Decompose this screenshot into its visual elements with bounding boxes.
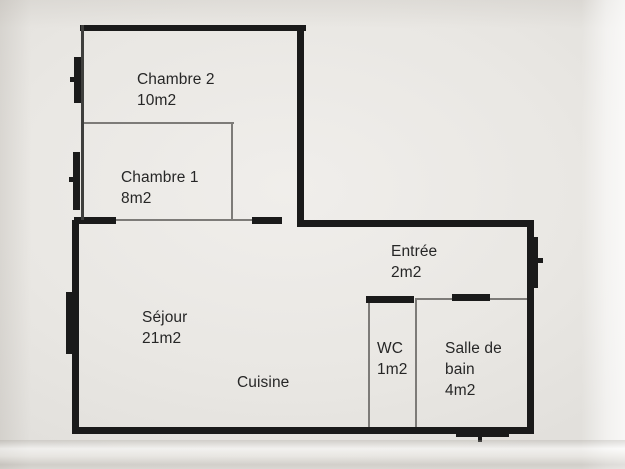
floorplan-photo: Chambre 2 10m2 Chambre 1 8m2 Séjour 21m2…: [0, 0, 625, 469]
room-name: Entrée: [391, 241, 437, 262]
partition-chambre1-top: [84, 122, 234, 124]
window-marker-chambre2: [74, 57, 81, 103]
window-marker-sejour: [66, 292, 74, 354]
room-name: Cuisine: [237, 372, 289, 393]
room-name: Chambre 1: [121, 167, 199, 188]
room-label-entree: Entrée 2m2: [391, 241, 437, 283]
room-name: Salle de bain: [445, 338, 511, 380]
window-marker-chambre1: [73, 152, 80, 210]
window-tick-chambre1: [69, 177, 74, 182]
room-area: 4m2: [445, 380, 511, 401]
window-tick-chambre2: [70, 77, 75, 82]
room-label-salle-de-bain: Salle de bain 4m2: [445, 338, 511, 401]
window-marker-sdb-bottom: [456, 429, 509, 437]
room-area: 1m2: [377, 359, 407, 380]
room-label-cuisine: Cuisine: [237, 372, 289, 393]
partition-chambre1-bottom: [116, 219, 252, 221]
room-area: 10m2: [137, 90, 215, 111]
partition-chambre1-right: [231, 122, 233, 220]
room-area: 21m2: [142, 328, 187, 349]
wall-bar-wc-top: [366, 296, 414, 303]
entry-door-tick: [537, 258, 543, 263]
room-label-chambre-2: Chambre 2 10m2: [137, 69, 215, 111]
paper-edge-shadow: [0, 440, 625, 469]
room-label-chambre-1: Chambre 1 8m2: [121, 167, 199, 209]
wall-top-entree: [297, 220, 534, 227]
room-name: WC: [377, 338, 407, 359]
room-area: 2m2: [391, 262, 437, 283]
partition-wc-sdb-divider: [415, 298, 417, 427]
wall-stub-sejour-right: [252, 217, 282, 224]
wall-bar-sdb-top: [452, 294, 490, 301]
wall-right-bedrooms: [297, 25, 304, 227]
room-name: Chambre 2: [137, 69, 215, 90]
room-label-sejour: Séjour 21m2: [142, 307, 187, 349]
partition-wc-left: [368, 298, 370, 427]
room-area: 8m2: [121, 188, 199, 209]
wall-top-bedrooms: [80, 25, 306, 31]
room-name: Séjour: [142, 307, 187, 328]
room-label-wc: WC 1m2: [377, 338, 407, 380]
